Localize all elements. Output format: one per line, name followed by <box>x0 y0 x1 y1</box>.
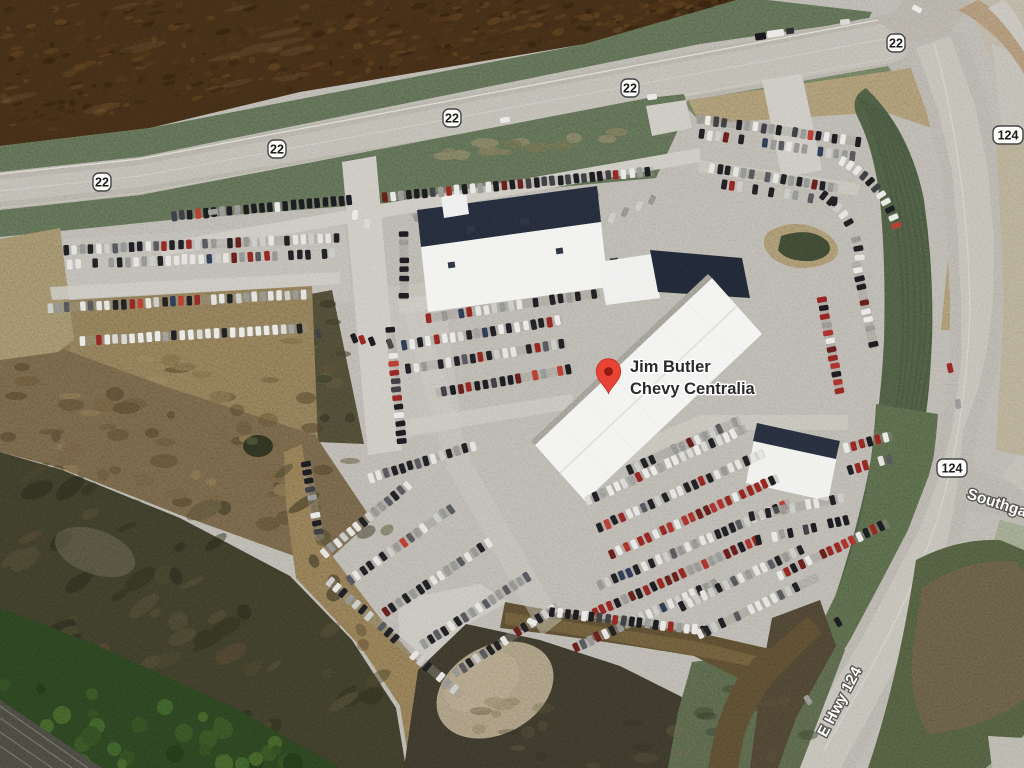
svg-text:22: 22 <box>889 37 903 51</box>
svg-text:Chevy Centralia: Chevy Centralia <box>630 380 756 398</box>
svg-text:22: 22 <box>445 112 459 126</box>
svg-text:22: 22 <box>623 82 637 96</box>
svg-text:Jim Butler: Jim Butler <box>630 358 711 376</box>
svg-text:124: 124 <box>942 462 963 476</box>
svg-text:124: 124 <box>998 129 1019 143</box>
svg-text:22: 22 <box>270 143 284 157</box>
svg-text:22: 22 <box>95 176 109 190</box>
